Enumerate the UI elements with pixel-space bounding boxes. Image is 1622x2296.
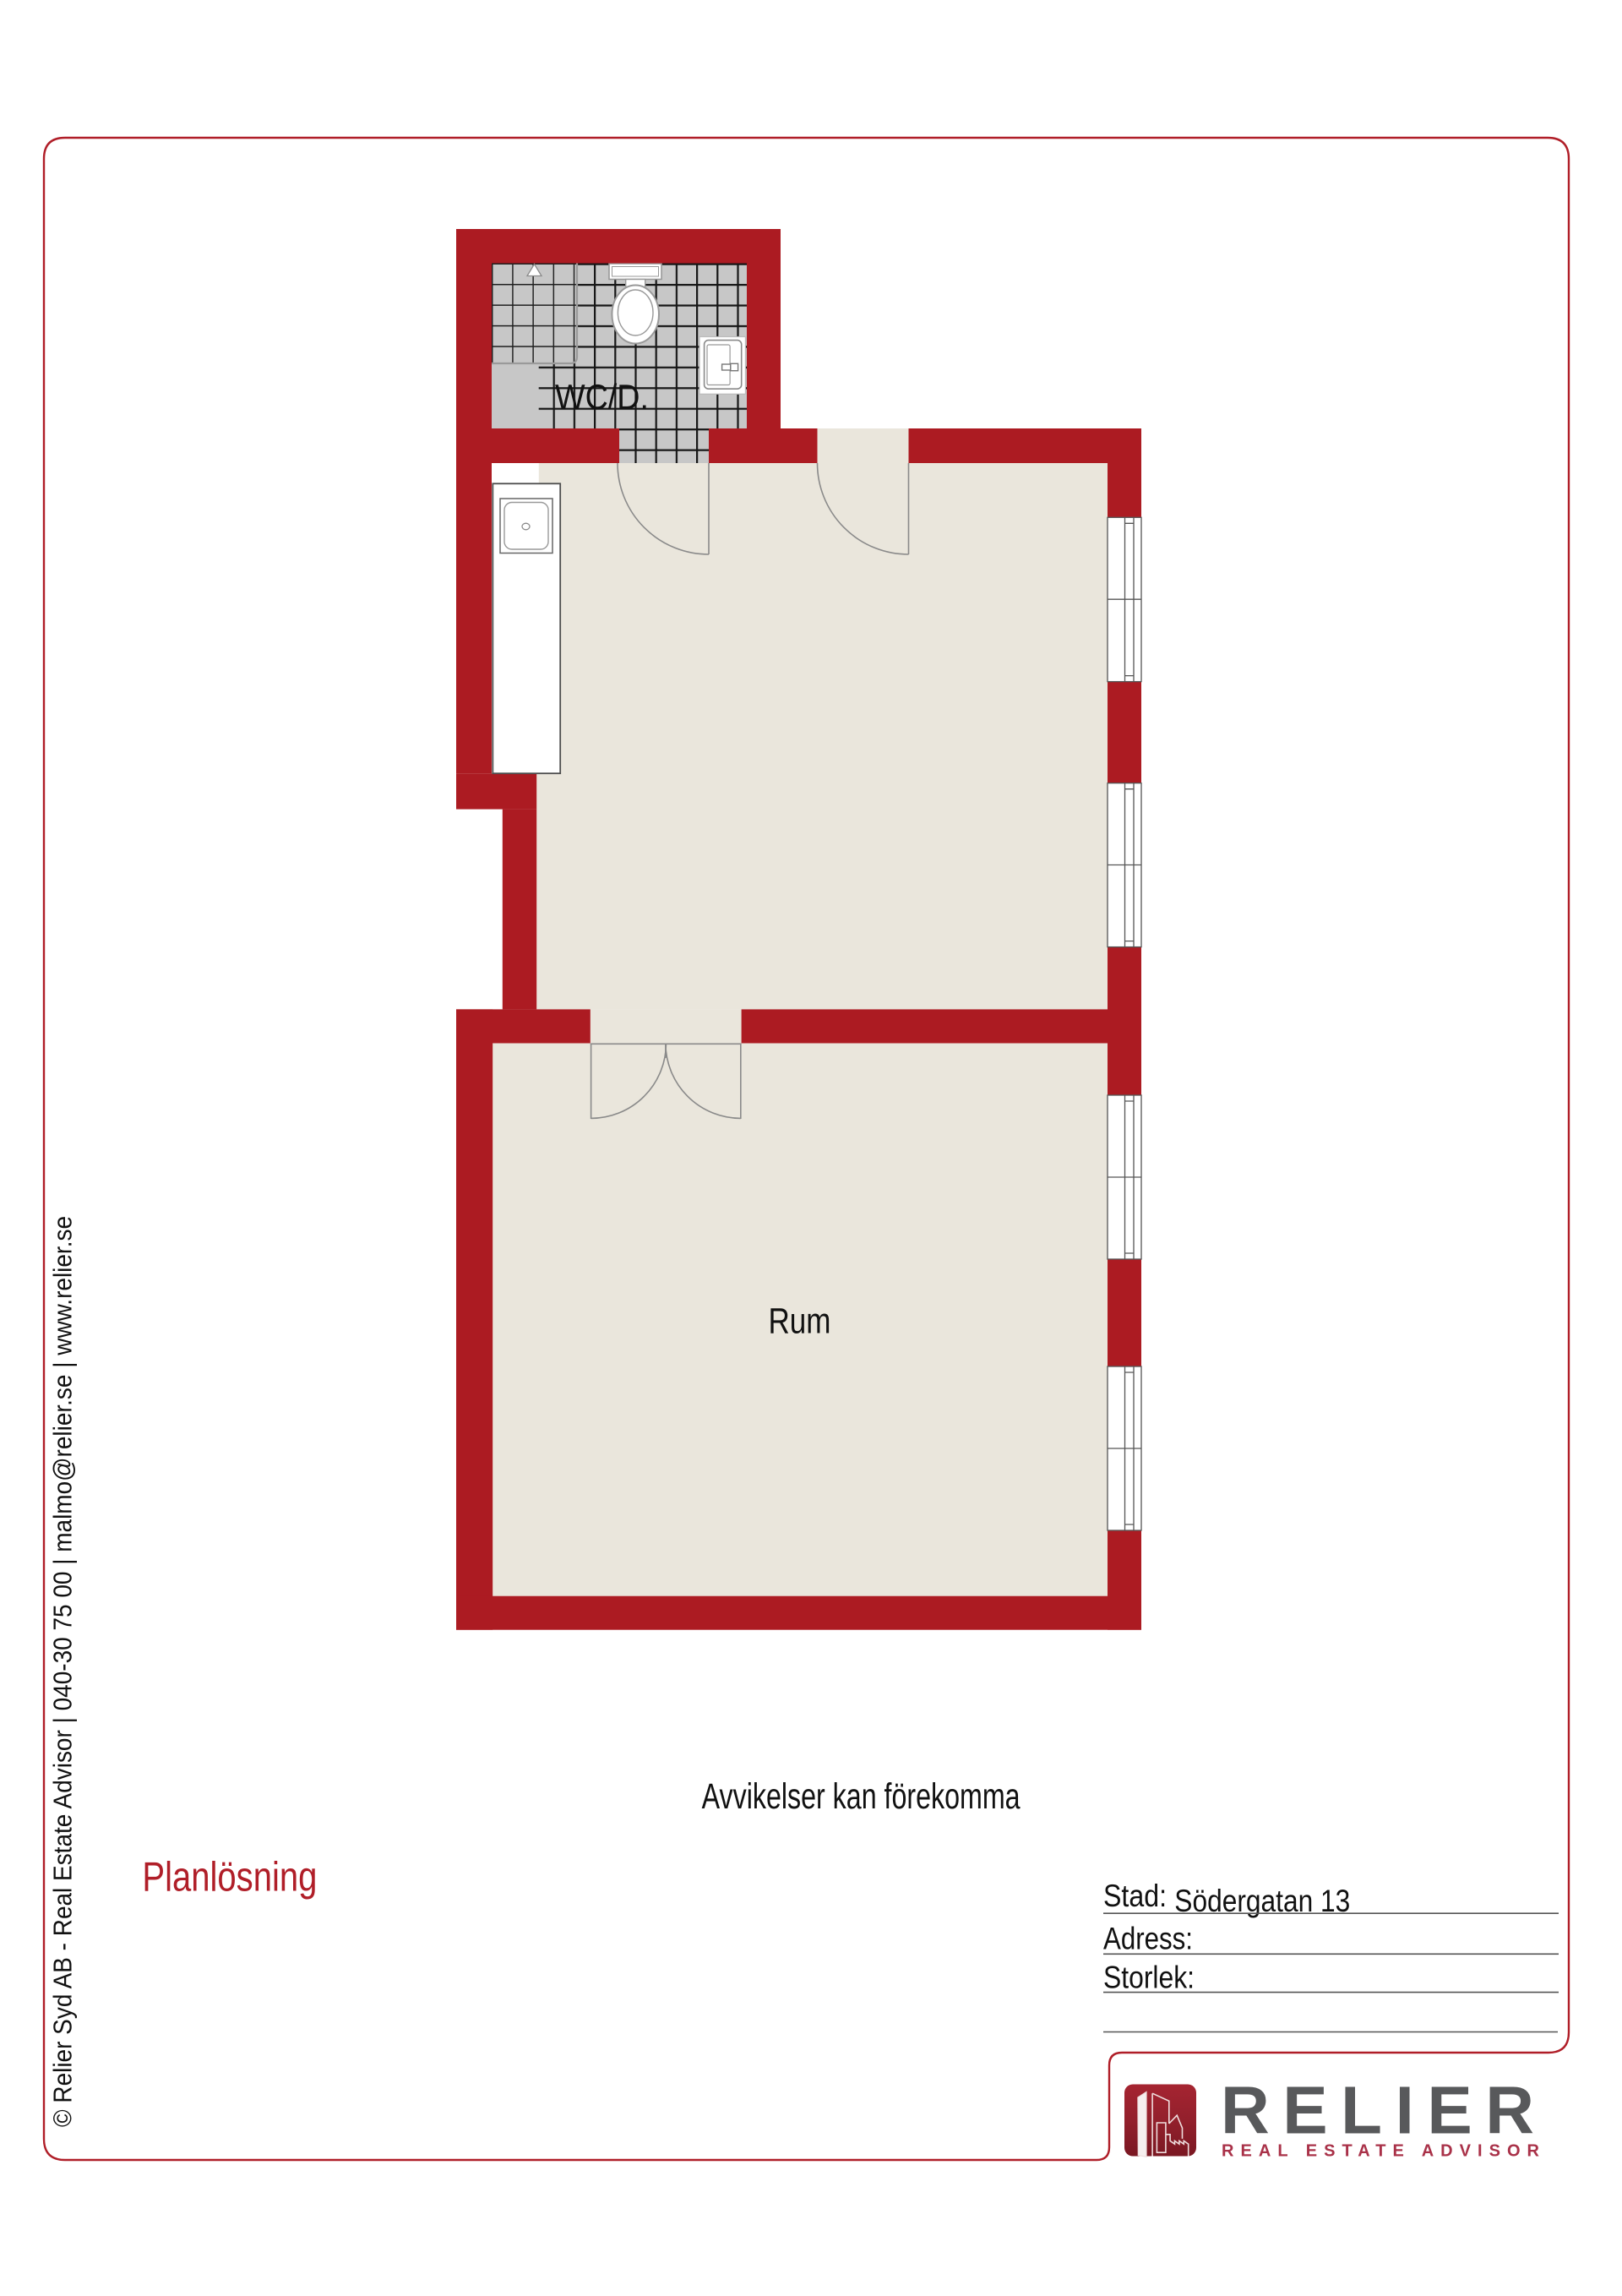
svg-text:WC/D.: WC/D. (555, 377, 649, 417)
svg-text:RELIER: RELIER (1221, 2073, 1539, 2148)
svg-text:Adress:: Adress: (1103, 1920, 1193, 1955)
svg-text:Avvikelser kan förekomma: Avvikelser kan förekomma (702, 1776, 1021, 1817)
svg-text:© Relier Syd AB - Real Estate: © Relier Syd AB - Real Estate Advisor | … (48, 1216, 78, 2127)
svg-text:Stad:: Stad: (1103, 1878, 1167, 1913)
svg-text:REAL ESTATE ADVISOR: REAL ESTATE ADVISOR (1222, 2142, 1543, 2161)
svg-text:Storlek:: Storlek: (1103, 1959, 1195, 1994)
svg-text:Planlösning: Planlösning (142, 1854, 317, 1900)
svg-text:Rum: Rum (769, 1301, 831, 1342)
